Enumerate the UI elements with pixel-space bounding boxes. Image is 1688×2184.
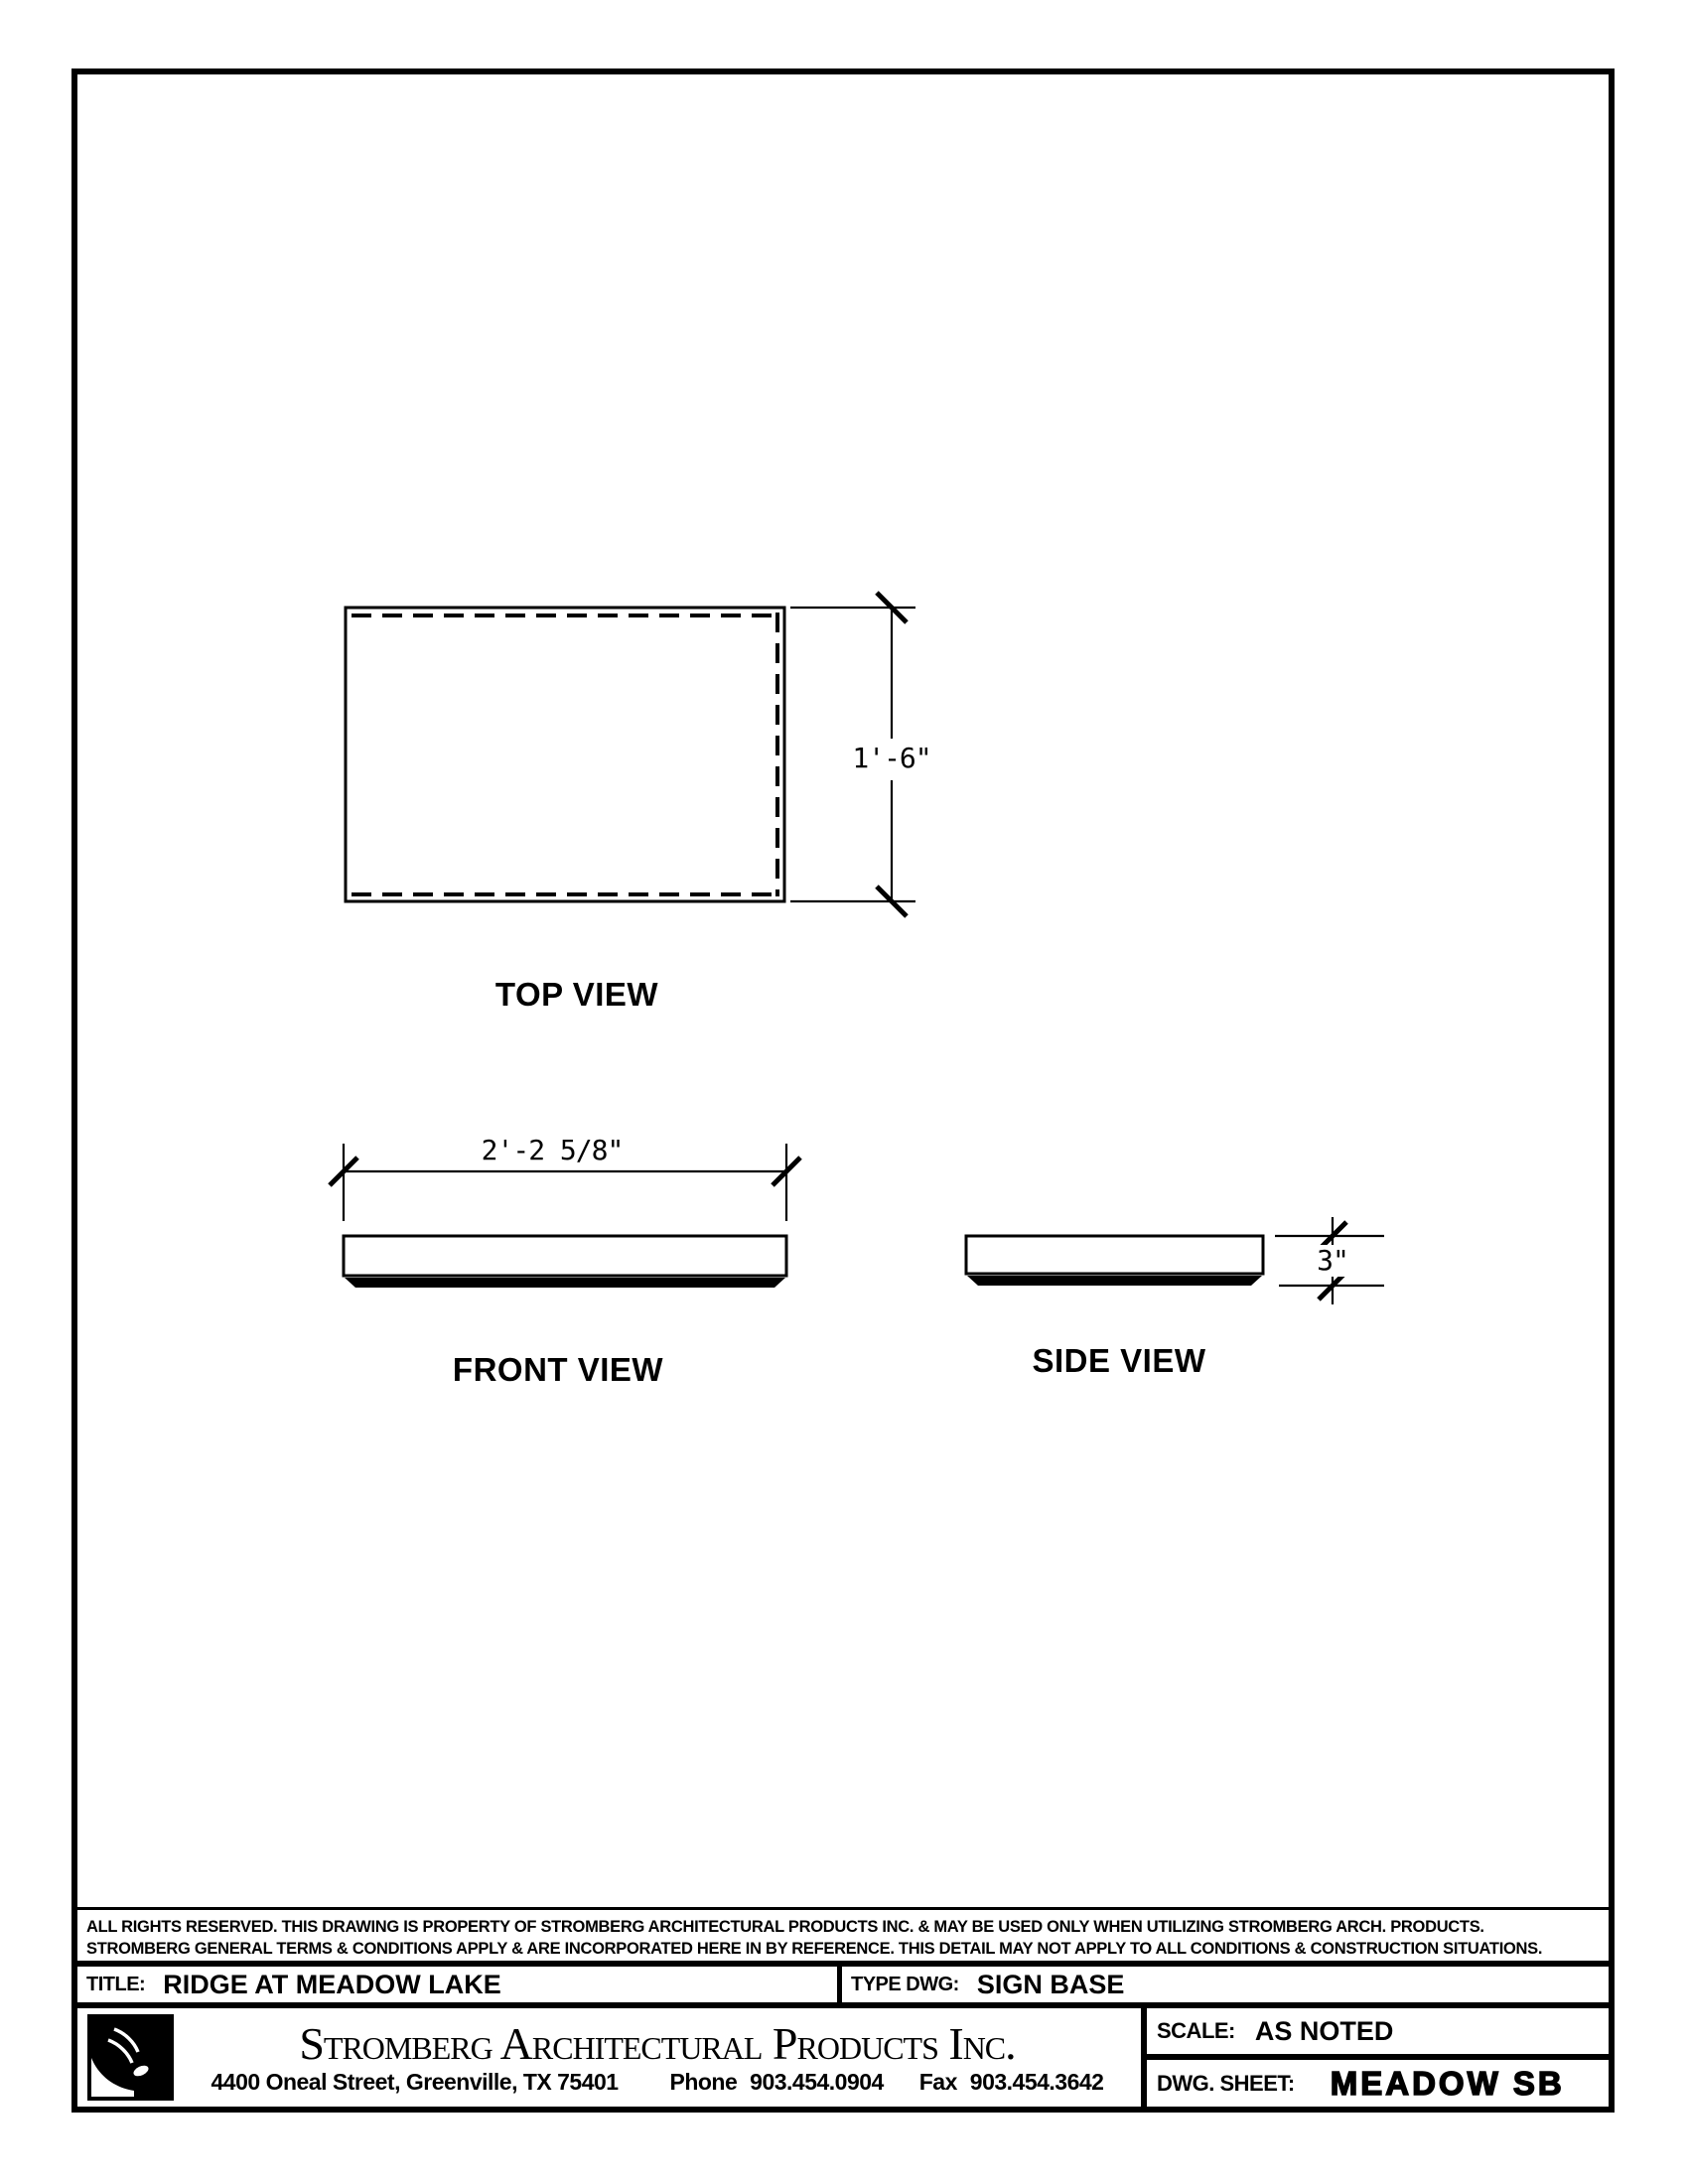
sheet-border-frame <box>71 68 1615 2113</box>
scale-cell: SCALE: AS NOTED <box>1147 2008 1609 2060</box>
scale-sheet-column: SCALE: AS NOTED DWG. SHEET: MEADOW SB <box>1141 2008 1609 2107</box>
company-name: Stromberg Architectural Products Inc. <box>174 2020 1141 2068</box>
title-label: TITLE: <box>86 1974 145 1996</box>
company-address: 4400 Oneal Street, Greenville, TX 75401 <box>211 2069 619 2095</box>
type-dwg-cell: TYPE DWG: SIGN BASE <box>837 1967 1609 2002</box>
dwg-sheet-cell: DWG. SHEET: MEADOW SB <box>1147 2060 1609 2107</box>
drawing-title: RIDGE AT MEADOW LAKE <box>163 1970 500 2000</box>
company-text: Stromberg Architectural Products Inc. 44… <box>174 2020 1141 2096</box>
company-cell: Stromberg Architectural Products Inc. 44… <box>77 2008 1141 2107</box>
company-address-line: 4400 Oneal Street, Greenville, TX 75401 … <box>174 2068 1141 2096</box>
front-view-width-dimension: 2'-2 5/8" <box>482 1135 624 1166</box>
type-dwg-value: SIGN BASE <box>977 1970 1125 2000</box>
fax-number: 903.454.3642 <box>970 2069 1104 2095</box>
scale-label: SCALE: <box>1157 2018 1235 2044</box>
dwg-sheet-label: DWG. SHEET: <box>1157 2071 1295 2097</box>
stromberg-logo-icon <box>87 2014 174 2101</box>
side-view-label: SIDE VIEW <box>1032 1343 1205 1379</box>
front-view-label: FRONT VIEW <box>453 1352 663 1388</box>
legal-line-1: ALL RIGHTS RESERVED. THIS DRAWING IS PRO… <box>86 1916 1609 1938</box>
legal-line-2: STROMBERG GENERAL TERMS & CONDITIONS APP… <box>86 1938 1609 1960</box>
legal-notice: ALL RIGHTS RESERVED. THIS DRAWING IS PRO… <box>77 1907 1609 1961</box>
top-view-label: TOP VIEW <box>495 977 658 1013</box>
top-view-height-dimension: 1'-6" <box>849 743 933 774</box>
phone-number: 903.454.0904 <box>750 2069 884 2095</box>
fax-label: Fax <box>919 2069 957 2095</box>
title-row: TITLE: RIDGE AT MEADOW LAKE TYPE DWG: SI… <box>77 1961 1609 2008</box>
side-view-thickness-dimension: 3" <box>1314 1245 1351 1277</box>
scale-value: AS NOTED <box>1255 2016 1394 2047</box>
company-row: Stromberg Architectural Products Inc. 44… <box>77 2008 1609 2107</box>
type-dwg-label: TYPE DWG: <box>851 1974 959 1996</box>
title-cell: TITLE: RIDGE AT MEADOW LAKE <box>77 1967 837 2002</box>
dwg-sheet-value: MEADOW SB <box>1331 2065 1565 2103</box>
title-block: ALL RIGHTS RESERVED. THIS DRAWING IS PRO… <box>77 1907 1609 2107</box>
phone-label: Phone <box>669 2069 737 2095</box>
